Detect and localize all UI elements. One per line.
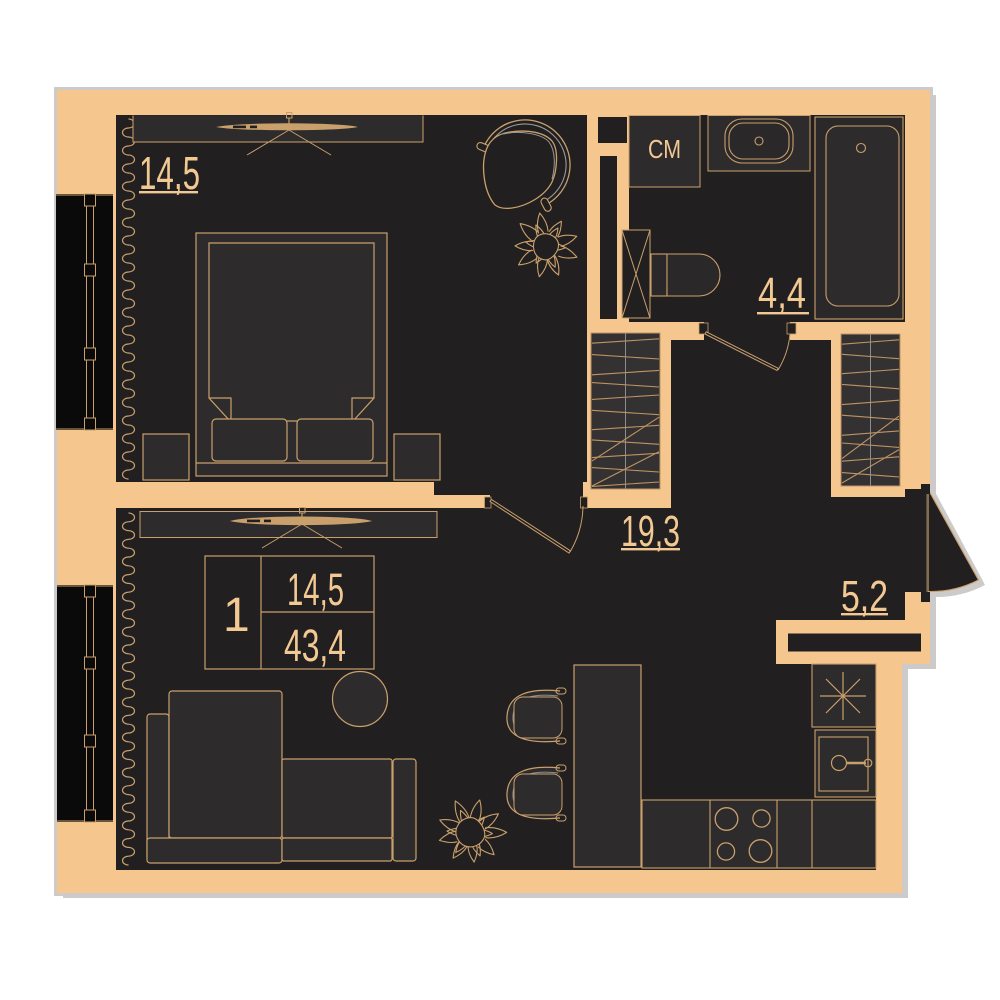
svg-text:СМ: СМ xyxy=(648,134,681,164)
svg-text:14,5: 14,5 xyxy=(287,564,344,615)
svg-text:43,4: 43,4 xyxy=(284,620,346,671)
svg-text:4,4: 4,4 xyxy=(758,269,806,318)
svg-text:1: 1 xyxy=(223,589,250,642)
